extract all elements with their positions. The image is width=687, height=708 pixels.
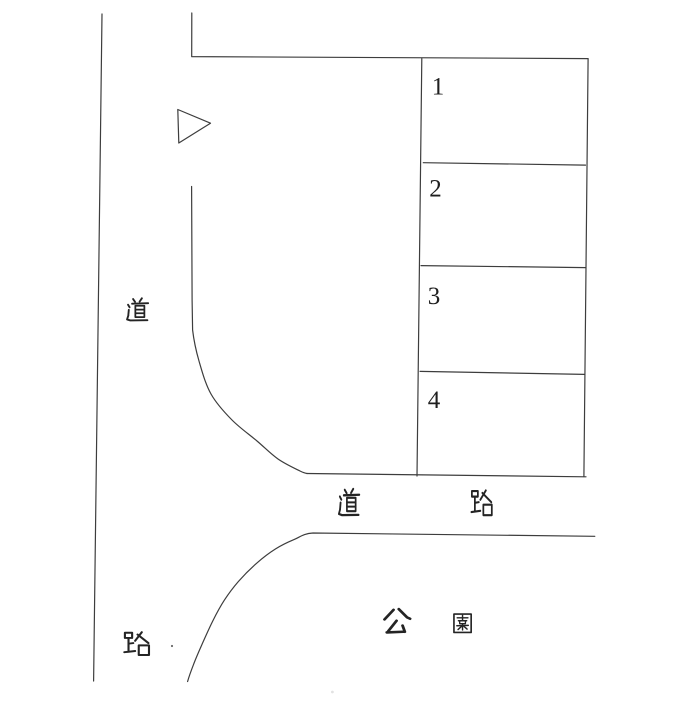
svg-text:3: 3 — [428, 283, 441, 310]
svg-text:4: 4 — [428, 387, 441, 414]
svg-text:1: 1 — [432, 74, 445, 101]
svg-text:2: 2 — [429, 176, 442, 203]
